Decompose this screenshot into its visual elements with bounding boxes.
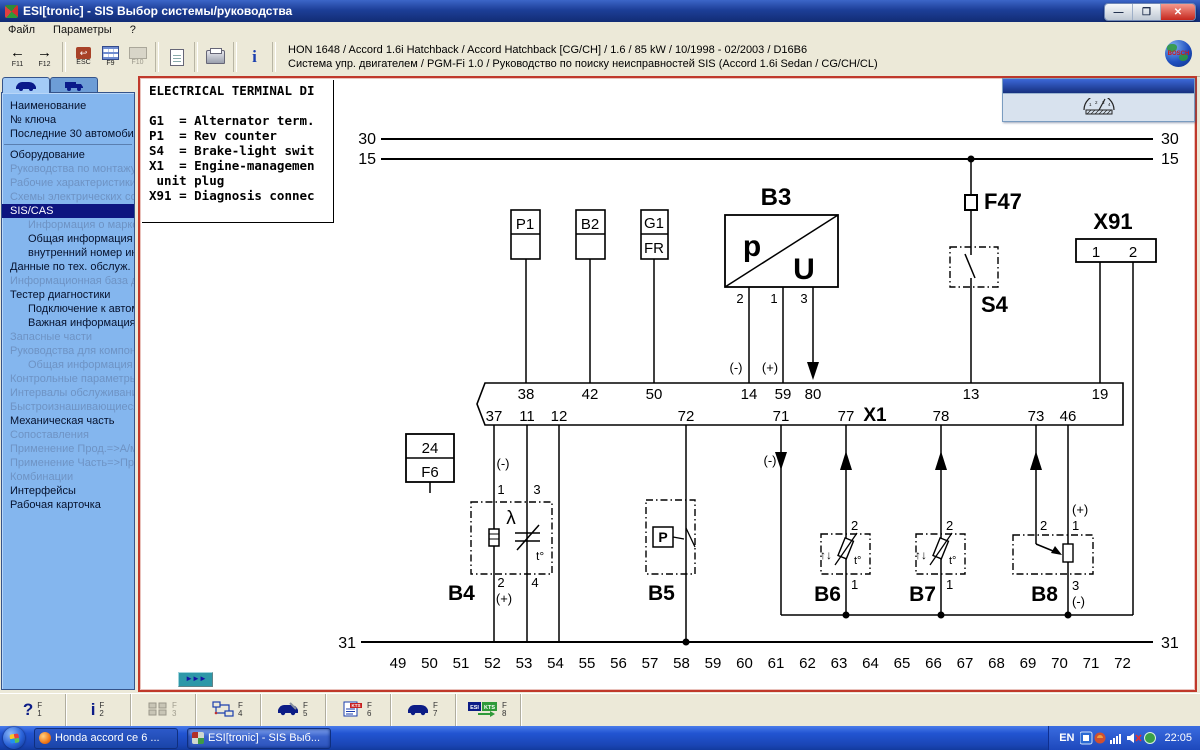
tray-icons[interactable] xyxy=(1080,731,1158,745)
arrow-up xyxy=(1030,451,1042,470)
maximize-button[interactable]: ❐ xyxy=(1133,4,1161,20)
junction-dot xyxy=(1065,612,1072,619)
window-controls: — ❐ ✕ xyxy=(1104,3,1196,21)
current-track-number: 57 xyxy=(642,655,659,672)
firefox-icon xyxy=(39,732,51,744)
car-icon xyxy=(15,80,37,91)
svg-text:KTS: KTS xyxy=(352,703,361,708)
junction-dot xyxy=(968,156,975,163)
fkey-button-esi-to-kts[interactable]: ESIKTSF8 xyxy=(455,694,521,726)
svg-text:t°: t° xyxy=(536,549,544,563)
document-icon xyxy=(170,49,184,66)
svg-text:(+): (+) xyxy=(762,360,778,375)
arrow-up xyxy=(935,451,947,470)
sidebar-item[interactable]: Данные по тех. обслуж. xyxy=(2,260,134,274)
current-track-number: 62 xyxy=(799,655,816,672)
window-title: ESI[tronic] - SIS Выбор системы/руководс… xyxy=(23,4,292,18)
sidebar-item[interactable]: Оборудование xyxy=(2,148,134,162)
sidebar-item[interactable]: Наименование xyxy=(2,99,134,113)
back-button[interactable]: ← F11 xyxy=(4,40,31,74)
info-icon: i xyxy=(91,701,96,719)
taskbar: Honda accord ce 6 ... ESI[tronic] - SIS … xyxy=(0,726,1200,750)
svg-text:(-): (-) xyxy=(730,360,743,375)
current-track-number: 69 xyxy=(1020,655,1037,672)
svg-text:2: 2 xyxy=(946,518,953,533)
current-track-number: 65 xyxy=(894,655,911,672)
sidebar-item: Контрольные параметры... xyxy=(2,372,134,386)
bus-31-label-left: 31 xyxy=(338,635,356,652)
sidebar-item[interactable]: SIS/CAS xyxy=(2,204,134,218)
printer-icon xyxy=(206,50,225,64)
svg-text:(+): (+) xyxy=(1072,502,1088,517)
bus-31-label-right: 31 xyxy=(1161,635,1179,652)
x1-bottom-terminal: 11 xyxy=(519,408,535,425)
sidebar-item: Руководства по монтажу xyxy=(2,162,134,176)
junction-dot xyxy=(938,612,945,619)
current-track-number: 66 xyxy=(925,655,942,672)
svg-text:2: 2 xyxy=(1095,100,1098,105)
b5-p-symbol: P xyxy=(658,529,667,545)
tab-truck[interactable] xyxy=(50,77,98,93)
junction-dot xyxy=(843,612,850,619)
next-pages-button[interactable]: ►►► xyxy=(178,672,213,687)
x1-top-terminal: 59 xyxy=(775,386,792,403)
s4-box xyxy=(950,247,998,287)
p1-label: P1 xyxy=(516,216,534,233)
taskbar-item-esitronic[interactable]: ESI[tronic] - SIS Выб... xyxy=(187,728,331,749)
svg-text:4: 4 xyxy=(531,575,538,590)
svg-text:t°: t° xyxy=(949,555,956,567)
tab-car[interactable] xyxy=(2,77,50,93)
current-track-number: 60 xyxy=(736,655,753,672)
svg-text:2: 2 xyxy=(1129,244,1137,261)
current-track-number: 71 xyxy=(1083,655,1100,672)
current-track-number: 63 xyxy=(831,655,848,672)
svg-text:1: 1 xyxy=(946,577,953,592)
current-track-number: 68 xyxy=(988,655,1005,672)
forward-arrow-icon: → xyxy=(37,45,52,61)
sidebar-item: Быстроизнашивающиеся ... xyxy=(2,400,134,414)
sidebar-item: Сопоставления xyxy=(2,428,134,442)
x1-top-terminal: 38 xyxy=(518,386,535,403)
network-signal-icon xyxy=(1110,734,1121,744)
b3-u-symbol: U xyxy=(793,253,815,286)
print-button[interactable] xyxy=(202,40,229,74)
bus-30-label-right: 30 xyxy=(1161,131,1179,148)
svg-text:KTS: KTS xyxy=(484,705,495,711)
x1-bottom-terminal: 12 xyxy=(551,408,568,425)
sidebar-item[interactable]: Механическая часть xyxy=(2,414,134,428)
sidebar-item: Применение Часть=>Прод. xyxy=(2,456,134,470)
x1-bottom-terminal: 78 xyxy=(933,408,950,425)
svg-text:2: 2 xyxy=(1040,518,1047,533)
vehicle-info-line1: HON 1648 / Accord 1.6i Hatchback / Accor… xyxy=(288,43,878,57)
sidebar-item[interactable]: Последние 30 автомобилей xyxy=(2,127,134,141)
sidebar-item: Руководства для компон... xyxy=(2,344,134,358)
b5-label: B5 xyxy=(648,582,675,605)
current-track-number: 61 xyxy=(768,655,785,672)
svg-text:1: 1 xyxy=(497,482,504,497)
vehicle-icon xyxy=(407,702,429,719)
minimize-button[interactable]: — xyxy=(1105,4,1133,20)
current-track-number: 67 xyxy=(957,655,974,672)
sidebar-item[interactable]: внутренний номер инс... xyxy=(2,246,134,260)
windows-logo-icon xyxy=(9,733,19,743)
sidebar-item: Схемы электрических со... xyxy=(2,190,134,204)
b8-potentiometer xyxy=(1063,544,1073,562)
x1-bottom-terminal: 72 xyxy=(678,408,695,425)
x1-top-terminal: 42 xyxy=(582,386,599,403)
b2-label: B2 xyxy=(581,216,599,233)
vehicle-service-icon xyxy=(277,702,299,719)
grid-window-icon xyxy=(102,46,119,60)
svg-text:1: 1 xyxy=(1089,102,1092,107)
svg-text:(-): (-) xyxy=(1072,594,1085,609)
sidebar-item[interactable]: Интерфейсы xyxy=(2,484,134,498)
svg-text:4: 4 xyxy=(1108,102,1111,107)
back-arrow-icon: ← xyxy=(10,45,25,61)
toolbar-separator xyxy=(233,42,237,72)
arrow-down xyxy=(807,362,819,380)
svg-text:1: 1 xyxy=(770,291,777,306)
help-icon: ? xyxy=(23,701,33,719)
x1-top-terminal: 14 xyxy=(741,386,758,403)
sidebar-item[interactable]: Рабочая карточка xyxy=(2,498,134,512)
svg-text:3: 3 xyxy=(533,482,540,497)
toolbar-separator xyxy=(155,42,159,72)
sidebar: Наименование№ ключаПоследние 30 автомоби… xyxy=(0,76,138,693)
volume-muted-icon xyxy=(1127,733,1141,743)
b8-label: B8 xyxy=(1031,583,1058,606)
f47-fuse xyxy=(965,195,977,210)
current-track-number: 51 xyxy=(453,655,470,672)
vehicle-info: HON 1648 / Accord 1.6i Hatchback / Accor… xyxy=(288,43,878,71)
b3-label: B3 xyxy=(761,184,792,211)
x1-connector-strip xyxy=(477,383,1123,425)
sidebar-item: Информация о марке xyxy=(2,218,134,232)
info-icon: i xyxy=(252,49,257,65)
current-track-number: 49 xyxy=(390,655,407,672)
x1-bottom-terminal: 71 xyxy=(773,408,790,425)
sidebar-item[interactable]: Подключение к автом... xyxy=(2,302,134,316)
sidebar-item: Интервалы обслуживания xyxy=(2,386,134,400)
b4-label: B4 xyxy=(448,582,475,605)
svg-text:2: 2 xyxy=(497,575,504,590)
sidebar-item[interactable]: № ключа xyxy=(2,113,134,127)
toolbar-separator xyxy=(272,42,276,72)
wiper-arrow xyxy=(1051,546,1062,555)
kts-document-icon: KTS xyxy=(343,701,363,720)
b6-label: B6 xyxy=(814,583,841,606)
gauge-panel-titlebar xyxy=(1003,79,1194,93)
svg-text:2: 2 xyxy=(851,518,858,533)
title-bar: ESI[tronic] - SIS Выбор системы/руководс… xyxy=(0,0,1200,22)
sidebar-item: Рабочие характеристики xyxy=(2,176,134,190)
current-track-number: 50 xyxy=(421,655,438,672)
svg-text:ESI: ESI xyxy=(470,705,479,711)
lambda-symbol: λ xyxy=(506,508,516,529)
fkey-button-wiring[interactable]: F4 xyxy=(195,694,261,726)
toolbar-separator xyxy=(62,42,66,72)
x91-label: X91 xyxy=(1093,209,1132,234)
svg-text:3: 3 xyxy=(800,291,807,306)
app-icon xyxy=(5,5,18,18)
svg-text:↑↓: ↑↓ xyxy=(820,548,832,562)
link-icon xyxy=(129,47,147,59)
b3-p-symbol: p xyxy=(743,230,761,263)
current-track-number: 72 xyxy=(1114,655,1131,672)
current-track-number: 53 xyxy=(516,655,533,672)
svg-text:(-): (-) xyxy=(764,453,777,468)
diagram-area: 30 30 15 15 31 31 X1 xyxy=(138,76,1197,692)
bottom-toolbar: ?F1iF2F3F4F5KTSF6F7ESIKTSF8 xyxy=(0,693,1200,727)
taskbar-item-browser[interactable]: Honda accord ce 6 ... xyxy=(34,728,178,749)
current-track-number: 55 xyxy=(579,655,596,672)
x1-top-terminal: 50 xyxy=(646,386,663,403)
wiring-icon xyxy=(212,701,234,720)
menu-bar: Файл Параметры ? xyxy=(0,22,1200,39)
fkey-button-vehicle[interactable]: F7 xyxy=(390,694,456,726)
document-button[interactable] xyxy=(163,40,190,74)
svg-text:1: 1 xyxy=(851,577,858,592)
truck-icon xyxy=(64,80,84,91)
esi-to-kts-icon: ESIKTS xyxy=(468,701,498,720)
bosch-logo: BOSCH xyxy=(1165,40,1192,67)
junction-dot xyxy=(683,639,690,646)
sidebar-item: Применение Прод.=>А/м. xyxy=(2,442,134,456)
svg-text:(-): (-) xyxy=(497,456,510,471)
current-track-number: 58 xyxy=(673,655,690,672)
overview-button[interactable]: F9 xyxy=(97,40,124,74)
arrow-down xyxy=(775,452,787,470)
language-indicator[interactable]: EN xyxy=(1059,732,1074,744)
connection-icon xyxy=(1145,733,1156,744)
system-tray: EN 22:05 xyxy=(1048,726,1200,750)
sidebar-item: Общая информация xyxy=(2,358,134,372)
svg-text:1: 1 xyxy=(1072,518,1079,533)
b4-heater xyxy=(489,529,499,546)
x1-bottom-terminal: 37 xyxy=(486,408,503,425)
menu-parameters[interactable]: Параметры xyxy=(45,23,120,37)
bus-30-label-left: 30 xyxy=(358,131,376,148)
svg-text:(+): (+) xyxy=(496,591,512,606)
current-track-number: 70 xyxy=(1051,655,1068,672)
x1-bottom-terminal: 77 xyxy=(838,408,855,425)
s4-label: S4 xyxy=(981,292,1009,317)
current-track-number: 59 xyxy=(705,655,722,672)
esitronic-window: ESI[tronic] - SIS Выбор системы/руководс… xyxy=(0,0,1200,750)
bus-15-label-left: 15 xyxy=(358,151,376,168)
b7-label: B7 xyxy=(909,583,936,606)
forward-button[interactable]: → F12 xyxy=(31,40,58,74)
menu-file[interactable]: Файл xyxy=(0,23,43,37)
x1-top-terminal: 13 xyxy=(963,386,980,403)
start-button[interactable] xyxy=(3,727,25,749)
g1-label: G1 xyxy=(644,215,664,232)
parts-icon xyxy=(148,702,168,719)
current-track-number: 52 xyxy=(484,655,501,672)
svg-text:3: 3 xyxy=(1072,578,1079,593)
top-toolbar: ← F11 → F12 ↩ ESC F9 F10 i xyxy=(0,38,1200,77)
sidebar-item: Информационная база да... xyxy=(2,274,134,288)
x1-label: X1 xyxy=(863,405,887,426)
s4-switch-blade xyxy=(965,254,975,278)
sidebar-item[interactable]: Тестер диагностики xyxy=(2,288,134,302)
gauge-icon: 1 2 3 4 xyxy=(1077,98,1121,116)
fkey-button-vehicle-service[interactable]: F5 xyxy=(260,694,326,726)
fkey-button-kts-document[interactable]: KTSF6 xyxy=(325,694,391,726)
x1-top-terminal: 80 xyxy=(805,386,822,403)
current-track-number: 56 xyxy=(610,655,627,672)
svg-text:24: 24 xyxy=(422,440,439,457)
taskbar-clock: 22:05 xyxy=(1164,732,1192,744)
x91-box xyxy=(1076,239,1156,262)
legend-box: ELECTRICAL TERMINAL DI G1 = Alternator t… xyxy=(142,80,334,223)
gauge-panel[interactable]: 1 2 3 4 xyxy=(1002,78,1195,122)
sidebar-item[interactable]: Общая информация xyxy=(2,232,134,246)
b5-switch-blade xyxy=(686,528,695,547)
current-track-number: 64 xyxy=(862,655,879,672)
menu-help[interactable]: ? xyxy=(122,23,144,37)
esitronic-icon xyxy=(192,732,204,744)
fkey-button-info[interactable]: iF2 xyxy=(65,694,131,726)
svg-text:↑↓: ↑↓ xyxy=(915,548,927,562)
toolbar-separator xyxy=(194,42,198,72)
close-button[interactable]: ✕ xyxy=(1161,4,1195,20)
svg-text:2: 2 xyxy=(736,291,743,306)
navigation-list: Наименование№ ключаПоследние 30 автомоби… xyxy=(1,92,135,690)
g1-fr-label: FR xyxy=(644,240,664,257)
x1-top-terminal: 19 xyxy=(1092,386,1109,403)
x1-bottom-terminal: 46 xyxy=(1060,408,1077,425)
x1-bottom-terminal: 73 xyxy=(1028,408,1045,425)
sidebar-item[interactable]: Важная информация xyxy=(2,316,134,330)
b8-box xyxy=(1013,535,1093,574)
legend-text: ELECTRICAL TERMINAL DI G1 = Alternator t… xyxy=(142,80,333,203)
f47-label: F47 xyxy=(984,189,1022,214)
arrow-up xyxy=(840,451,852,470)
current-track-number: 54 xyxy=(547,655,564,672)
svg-text:t°: t° xyxy=(854,555,861,567)
f6-label: F6 xyxy=(421,464,439,481)
vehicle-info-button[interactable]: i xyxy=(241,40,268,74)
link-button-disabled: F10 xyxy=(124,40,151,74)
svg-text:1: 1 xyxy=(1092,244,1100,261)
sidebar-item: Запасные части xyxy=(2,330,134,344)
bus-15-label-right: 15 xyxy=(1161,151,1179,168)
escape-icon: ↩ xyxy=(76,47,91,59)
sidebar-separator xyxy=(4,144,132,145)
escape-button[interactable]: ↩ ESC xyxy=(70,40,97,74)
terminal-number-rows: 3842501459801319371112727177787346495051… xyxy=(390,386,1131,672)
vehicle-info-line2: Система упр. двигателем / PGM-Fi 1.0 / Р… xyxy=(288,57,878,71)
sidebar-item: Комбинации xyxy=(2,470,134,484)
fkey-button-parts: F3 xyxy=(130,694,196,726)
fkey-button-help[interactable]: ?F1 xyxy=(0,694,66,726)
